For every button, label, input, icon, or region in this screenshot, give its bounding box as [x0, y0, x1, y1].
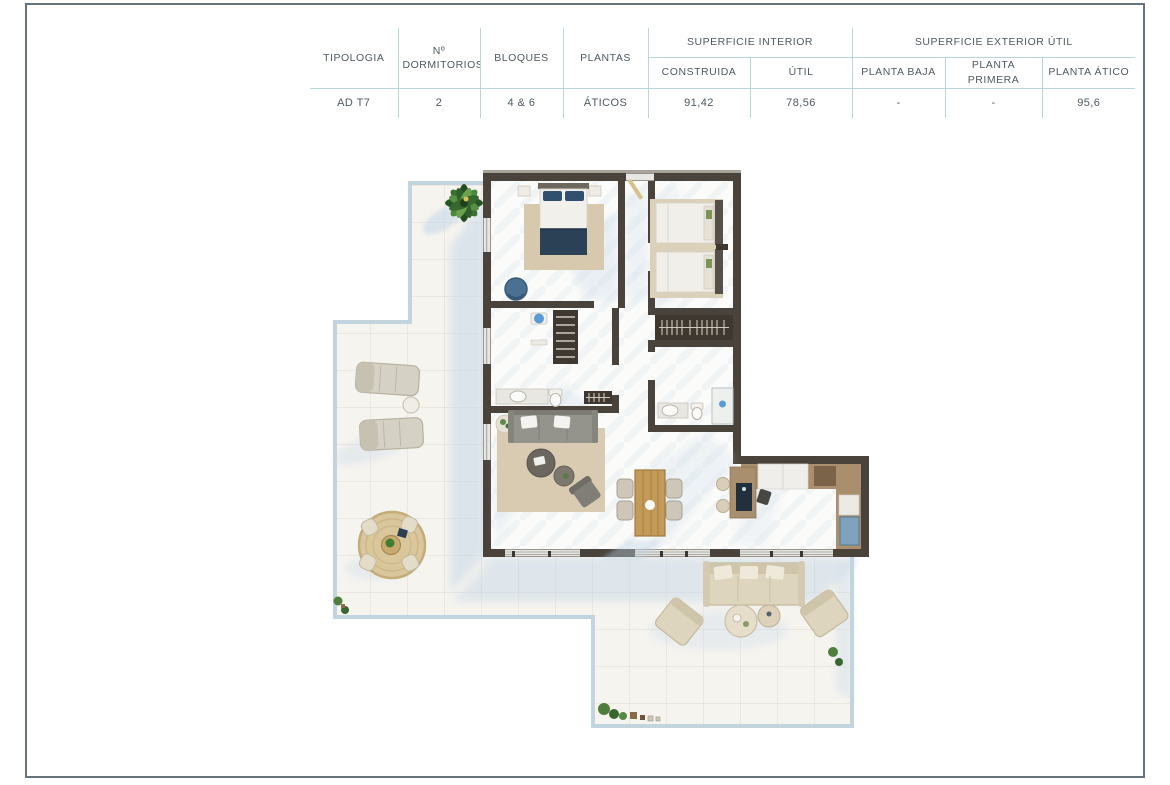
- cell-planta-primera: -: [945, 88, 1042, 118]
- outdoor-sofa: [703, 561, 805, 607]
- wall-bath1-east-upper: [612, 308, 619, 365]
- wall-bath2-west-upper: [648, 340, 655, 352]
- cell-planta-atico: 95,6: [1042, 88, 1135, 118]
- shower-drain: [719, 401, 726, 408]
- window-west-1: [484, 218, 491, 252]
- bedroom2-wardrobe: [655, 315, 733, 340]
- cooktop: [814, 466, 838, 486]
- sofa: [508, 410, 598, 443]
- cell-dormitorios: 2: [398, 88, 480, 118]
- bedroom-2: [650, 199, 728, 298]
- wall-bath2-west-lower: [648, 380, 655, 432]
- living-room: [496, 410, 605, 512]
- cell-planta-baja: -: [852, 88, 945, 118]
- col-header-planta-baja: PLANTA BAJA: [852, 57, 945, 88]
- cell-tipologia: AD T7: [310, 88, 398, 118]
- lounger-side-table: [403, 397, 419, 413]
- round-rug-set: [358, 512, 425, 578]
- sun-lounger-1: [355, 362, 420, 396]
- col-header-planta-primera: PLANTA PRIMERA: [945, 57, 1042, 88]
- group-header-superficie-exterior: SUPERFICIE EXTERIOR ÚTIL: [852, 28, 1135, 57]
- wall-bath2-north: [648, 340, 741, 347]
- dining-table: [635, 470, 665, 536]
- nightstand: [716, 244, 728, 250]
- col-header-construida: CONSTRUIDA: [648, 57, 750, 88]
- single-bed-2: [656, 249, 723, 294]
- toilet: [691, 403, 703, 420]
- sliding-door-south-1: [505, 550, 580, 558]
- col-header-plantas: PLANTAS: [563, 28, 648, 88]
- window-west-2: [484, 328, 491, 364]
- col-header-bloques: BLOQUES: [480, 28, 563, 88]
- corridor-closet: [584, 391, 612, 404]
- basin-blue: [534, 314, 544, 324]
- nightstand-left: [518, 186, 530, 196]
- sink: [662, 405, 678, 416]
- wall-master-east: [618, 181, 625, 308]
- wall-bedroom2-south: [648, 308, 741, 315]
- toilet: [549, 389, 562, 407]
- hall-closet: [553, 310, 578, 364]
- cell-plantas: ÁTICOS: [563, 88, 648, 118]
- wall-bath2-south: [648, 425, 741, 432]
- cell-bloques: 4 & 6: [480, 88, 563, 118]
- sun-lounger-2: [359, 417, 423, 450]
- col-header-dormitorios: Nº DORMITORIOS: [398, 28, 480, 88]
- cell-util: 78,56: [750, 88, 852, 118]
- col-header-util: ÚTIL: [750, 57, 852, 88]
- col-header-planta-atico: PLANTA ÁTICO: [1042, 57, 1135, 88]
- single-bed-1: [656, 200, 723, 245]
- sink: [510, 391, 526, 402]
- cell-construida: 91,42: [648, 88, 750, 118]
- window-west-3: [484, 424, 491, 460]
- double-bed: [538, 183, 589, 255]
- col-header-tipologia: TIPOLOGIA: [310, 28, 398, 88]
- sliding-door-south-3: [740, 550, 833, 558]
- unit-spec-table: TIPOLOGIA Nº DORMITORIOS BLOQUES PLANTAS…: [310, 28, 1135, 118]
- wall-bath1-east-lower: [612, 395, 619, 406]
- fridge: [840, 517, 859, 545]
- island: [730, 467, 756, 518]
- nightstand-right: [589, 186, 601, 196]
- group-header-superficie-interior: SUPERFICIE INTERIOR: [648, 28, 852, 57]
- accent-armchair: [505, 278, 527, 300]
- wall-master-south: [491, 301, 594, 308]
- oven-stack: [839, 495, 859, 515]
